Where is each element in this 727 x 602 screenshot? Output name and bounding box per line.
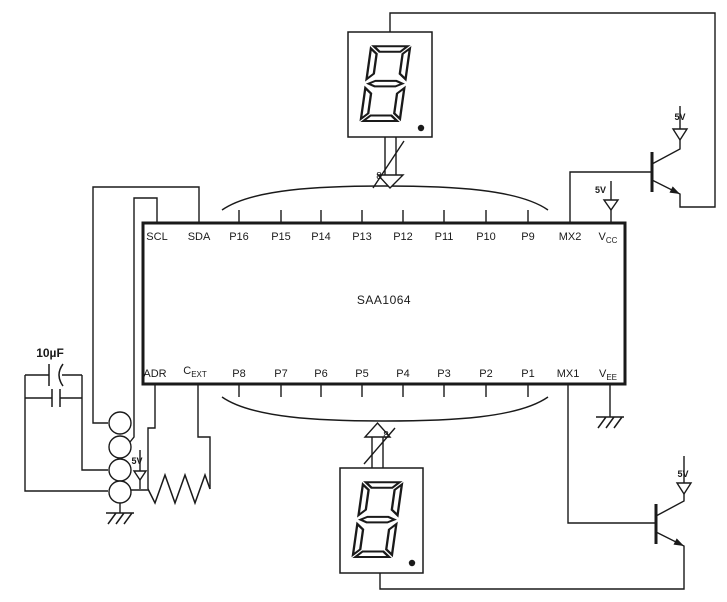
- seven-segment-digit: [353, 482, 403, 557]
- pin-label-p6: P6: [314, 368, 327, 380]
- supply-5v-local: 5V: [131, 450, 146, 489]
- pin-label-p13: P13: [352, 231, 372, 243]
- wire-top-display-loop: [390, 13, 715, 207]
- transistor-bottom: [656, 494, 684, 546]
- decimal-point: [409, 560, 415, 566]
- bus-width-label: 8: [383, 430, 389, 441]
- ic-bottom-pin-labels: ADR CEXT P8 P7 P6 P5 P4 P3 P2 P1 MX1 VEE: [143, 365, 617, 382]
- pin-label-p9: P9: [521, 231, 534, 243]
- wire-mx1-to-transistor: [568, 384, 655, 523]
- bus-arrow-top: 8: [373, 137, 404, 188]
- connector-terminal-3: [109, 459, 131, 481]
- pin-label-vcc: VCC: [599, 231, 618, 245]
- pin-label-cext: CEXT: [183, 365, 207, 379]
- emitter-arrow-icon: [674, 538, 685, 546]
- pin-label-p10: P10: [476, 231, 496, 243]
- ic-top-pin-labels: SCL SDA P16 P15 P14 P13 P12 P11 P10 P9 M…: [146, 231, 617, 245]
- wire-cext: [198, 384, 210, 489]
- pin-label-adr: ADR: [143, 368, 166, 380]
- supply-5v-label: 5V: [677, 469, 688, 479]
- wire-cap-left-rail: [25, 375, 108, 491]
- connector-terminals: [109, 412, 131, 503]
- seven-segment-display-bottom: [340, 468, 423, 573]
- pin-label-sda: SDA: [188, 231, 211, 243]
- supply-5v-label: 5V: [674, 112, 685, 122]
- supply-5v-vcc: 5V: [595, 181, 618, 223]
- pin-label-p14: P14: [311, 231, 331, 243]
- supply-triangle-icon: [673, 129, 687, 140]
- supply-triangle-icon: [134, 471, 146, 480]
- pin-label-mx2: MX2: [559, 231, 582, 243]
- wire-bottom-display-loop: [380, 532, 684, 589]
- pin-label-p5: P5: [355, 368, 368, 380]
- pin-label-p12: P12: [393, 231, 413, 243]
- connector-terminal-4: [109, 481, 131, 503]
- seven-segment-display-top: [348, 32, 432, 137]
- bus-width-label: 8: [376, 171, 382, 182]
- seven-segment-digit: [361, 46, 411, 121]
- pin-label-p2: P2: [479, 368, 492, 380]
- pin-group-arc-bottom: [222, 397, 548, 421]
- circuit-schematic: 10µF 5V 5V 5V 5V: [0, 0, 727, 602]
- transistor-top: [652, 140, 680, 194]
- ground-symbol-left: [106, 513, 134, 524]
- ic-pin-ticks-top: [239, 210, 528, 223]
- connector-terminal-1: [109, 412, 131, 434]
- pin-label-p8: P8: [232, 368, 245, 380]
- supply-5v-label: 5V: [595, 185, 606, 195]
- circuit-schematic-page: 10µF 5V 5V 5V 5V: [0, 0, 727, 602]
- supply-triangle-icon: [604, 200, 618, 210]
- pin-label-p3: P3: [437, 368, 450, 380]
- pin-label-p4: P4: [396, 368, 409, 380]
- capacitor-10uf: 10µF: [25, 346, 82, 407]
- pin-label-scl: SCL: [146, 231, 167, 243]
- supply-5v-label: 5V: [131, 456, 142, 466]
- ic-name-label: SAA1064: [357, 293, 411, 307]
- supply-triangle-icon: [677, 483, 691, 494]
- resistor: [148, 475, 210, 503]
- pin-label-p7: P7: [274, 368, 287, 380]
- pin-group-arc-top: [222, 186, 548, 210]
- decimal-point: [418, 125, 424, 131]
- connector-terminal-2: [109, 436, 131, 458]
- wire-adr: [148, 384, 155, 489]
- pin-label-vee: VEE: [599, 368, 617, 382]
- pin-label-p16: P16: [229, 231, 249, 243]
- supply-5v-top-transistor: 5V: [673, 106, 687, 140]
- ground-symbol-vee: [596, 417, 624, 428]
- bus-arrow-bottom: 8: [364, 423, 395, 468]
- ic-pin-ticks-bottom: [239, 384, 528, 397]
- pin-label-mx1: MX1: [557, 368, 580, 380]
- emitter-arrow-icon: [670, 186, 681, 194]
- pin-label-p15: P15: [271, 231, 291, 243]
- supply-5v-bottom-transistor: 5V: [677, 456, 691, 494]
- pin-label-p11: P11: [435, 231, 454, 243]
- capacitor-value-label: 10µF: [36, 346, 64, 360]
- pin-label-p1: P1: [521, 368, 534, 380]
